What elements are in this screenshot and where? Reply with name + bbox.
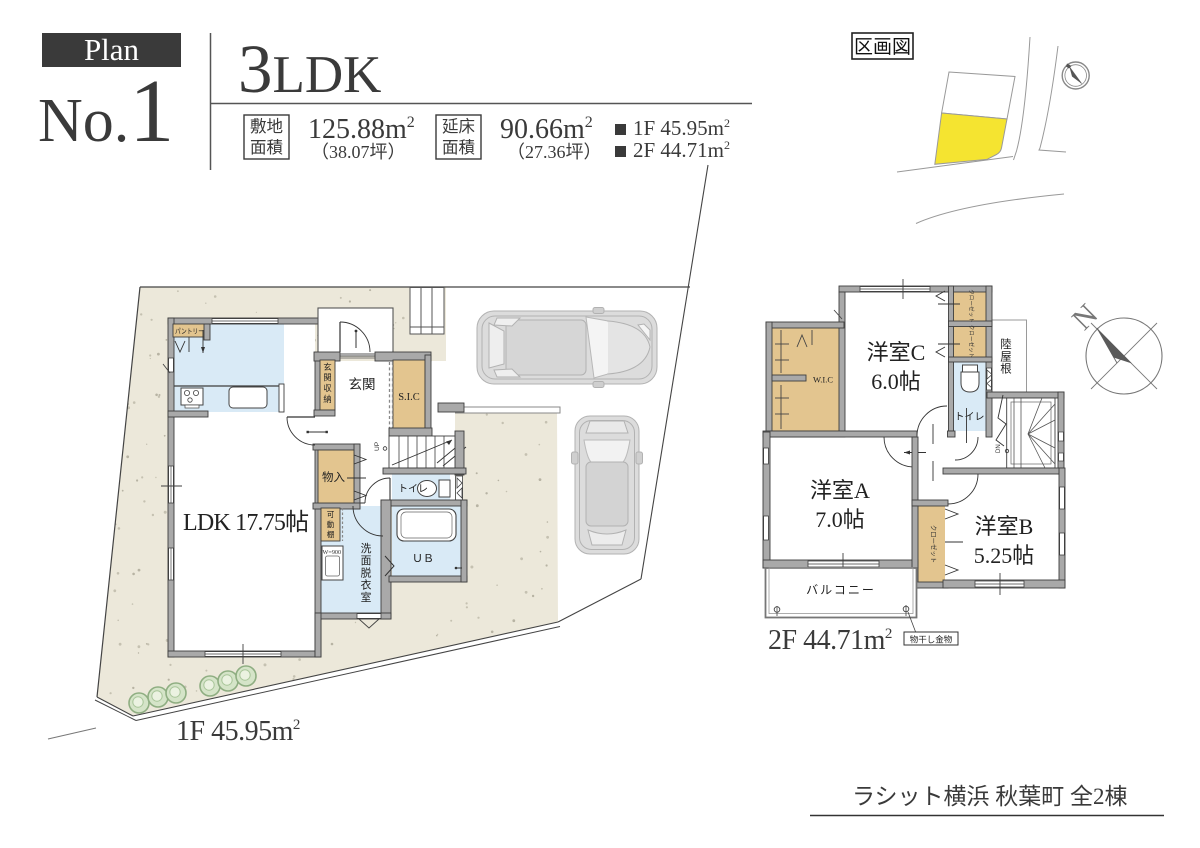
svg-text:収: 収 <box>323 383 332 393</box>
svg-text:90.66m2: 90.66m2 <box>500 114 593 145</box>
svg-text:動: 動 <box>327 520 335 529</box>
svg-text:バルコニー: バルコニー <box>806 583 876 597</box>
svg-text:根: 根 <box>1000 362 1012 376</box>
svg-text:敷地: 敷地 <box>250 117 283 136</box>
svg-text:物干し金物: 物干し金物 <box>910 635 953 645</box>
svg-text:納: 納 <box>323 394 331 404</box>
svg-text:2F 44.71m2: 2F 44.71m2 <box>633 138 730 162</box>
svg-text:W=900: W=900 <box>323 549 342 556</box>
svg-text:ラシット横浜 秋葉町 全2棟: ラシット横浜 秋葉町 全2棟 <box>852 784 1128 809</box>
svg-text:2F 44.71m2: 2F 44.71m2 <box>768 625 892 656</box>
svg-text:面積: 面積 <box>442 138 475 157</box>
svg-text:トイレ: トイレ <box>955 412 985 423</box>
svg-text:屋: 屋 <box>1000 350 1012 363</box>
svg-text:玄関: 玄関 <box>349 376 376 392</box>
svg-text:関: 関 <box>323 374 331 383</box>
svg-text:（38.07坪）: （38.07坪） <box>311 142 406 162</box>
svg-text:延床: 延床 <box>442 117 475 136</box>
svg-text:5.25帖: 5.25帖 <box>974 543 1035 568</box>
svg-text:UP: UP <box>374 442 381 451</box>
svg-text:6.0帖: 6.0帖 <box>871 369 921 394</box>
svg-text:棚: 棚 <box>327 529 335 539</box>
svg-text:衣: 衣 <box>361 578 372 592</box>
svg-text:ＵＢ: ＵＢ <box>412 553 434 565</box>
svg-text:洋室C: 洋室C <box>867 340 926 365</box>
svg-text:DN: DN <box>996 444 1002 453</box>
svg-text:面: 面 <box>361 555 372 567</box>
svg-text:7.0帖: 7.0帖 <box>815 507 865 532</box>
svg-text:3LDK: 3LDK <box>238 31 381 107</box>
svg-text:脱: 脱 <box>361 565 372 579</box>
svg-text:パントリー: パントリー <box>175 328 204 336</box>
svg-text:125.88m2: 125.88m2 <box>308 114 415 145</box>
svg-text:陸: 陸 <box>1000 338 1012 351</box>
svg-text:S.I.C: S.I.C <box>398 392 420 403</box>
svg-text:可: 可 <box>327 510 335 519</box>
svg-text:No.1: No.1 <box>38 62 174 161</box>
svg-text:クローゼット: クローゼット <box>968 289 976 323</box>
svg-text:トイレ: トイレ <box>398 484 428 495</box>
svg-text:（27.36坪）: （27.36坪） <box>507 142 602 162</box>
svg-text:洋室B: 洋室B <box>975 514 1034 539</box>
svg-text:洋室A: 洋室A <box>810 478 870 503</box>
svg-text:玄: 玄 <box>323 362 331 372</box>
svg-text:W.I.C: W.I.C <box>813 375 833 385</box>
svg-text:洗: 洗 <box>361 542 372 555</box>
svg-text:区画図: 区画図 <box>854 37 911 58</box>
svg-text:室: 室 <box>361 590 372 604</box>
svg-text:クローゼット: クローゼット <box>968 325 976 359</box>
svg-text:面積: 面積 <box>250 138 283 157</box>
svg-text:1F 45.95m2: 1F 45.95m2 <box>633 116 730 140</box>
svg-text:1F 45.95m2: 1F 45.95m2 <box>176 716 300 747</box>
svg-text:LDK 17.75帖: LDK 17.75帖 <box>183 509 308 536</box>
svg-text:物入: 物入 <box>322 470 345 484</box>
svg-text:クローゼット: クローゼット <box>930 525 939 563</box>
